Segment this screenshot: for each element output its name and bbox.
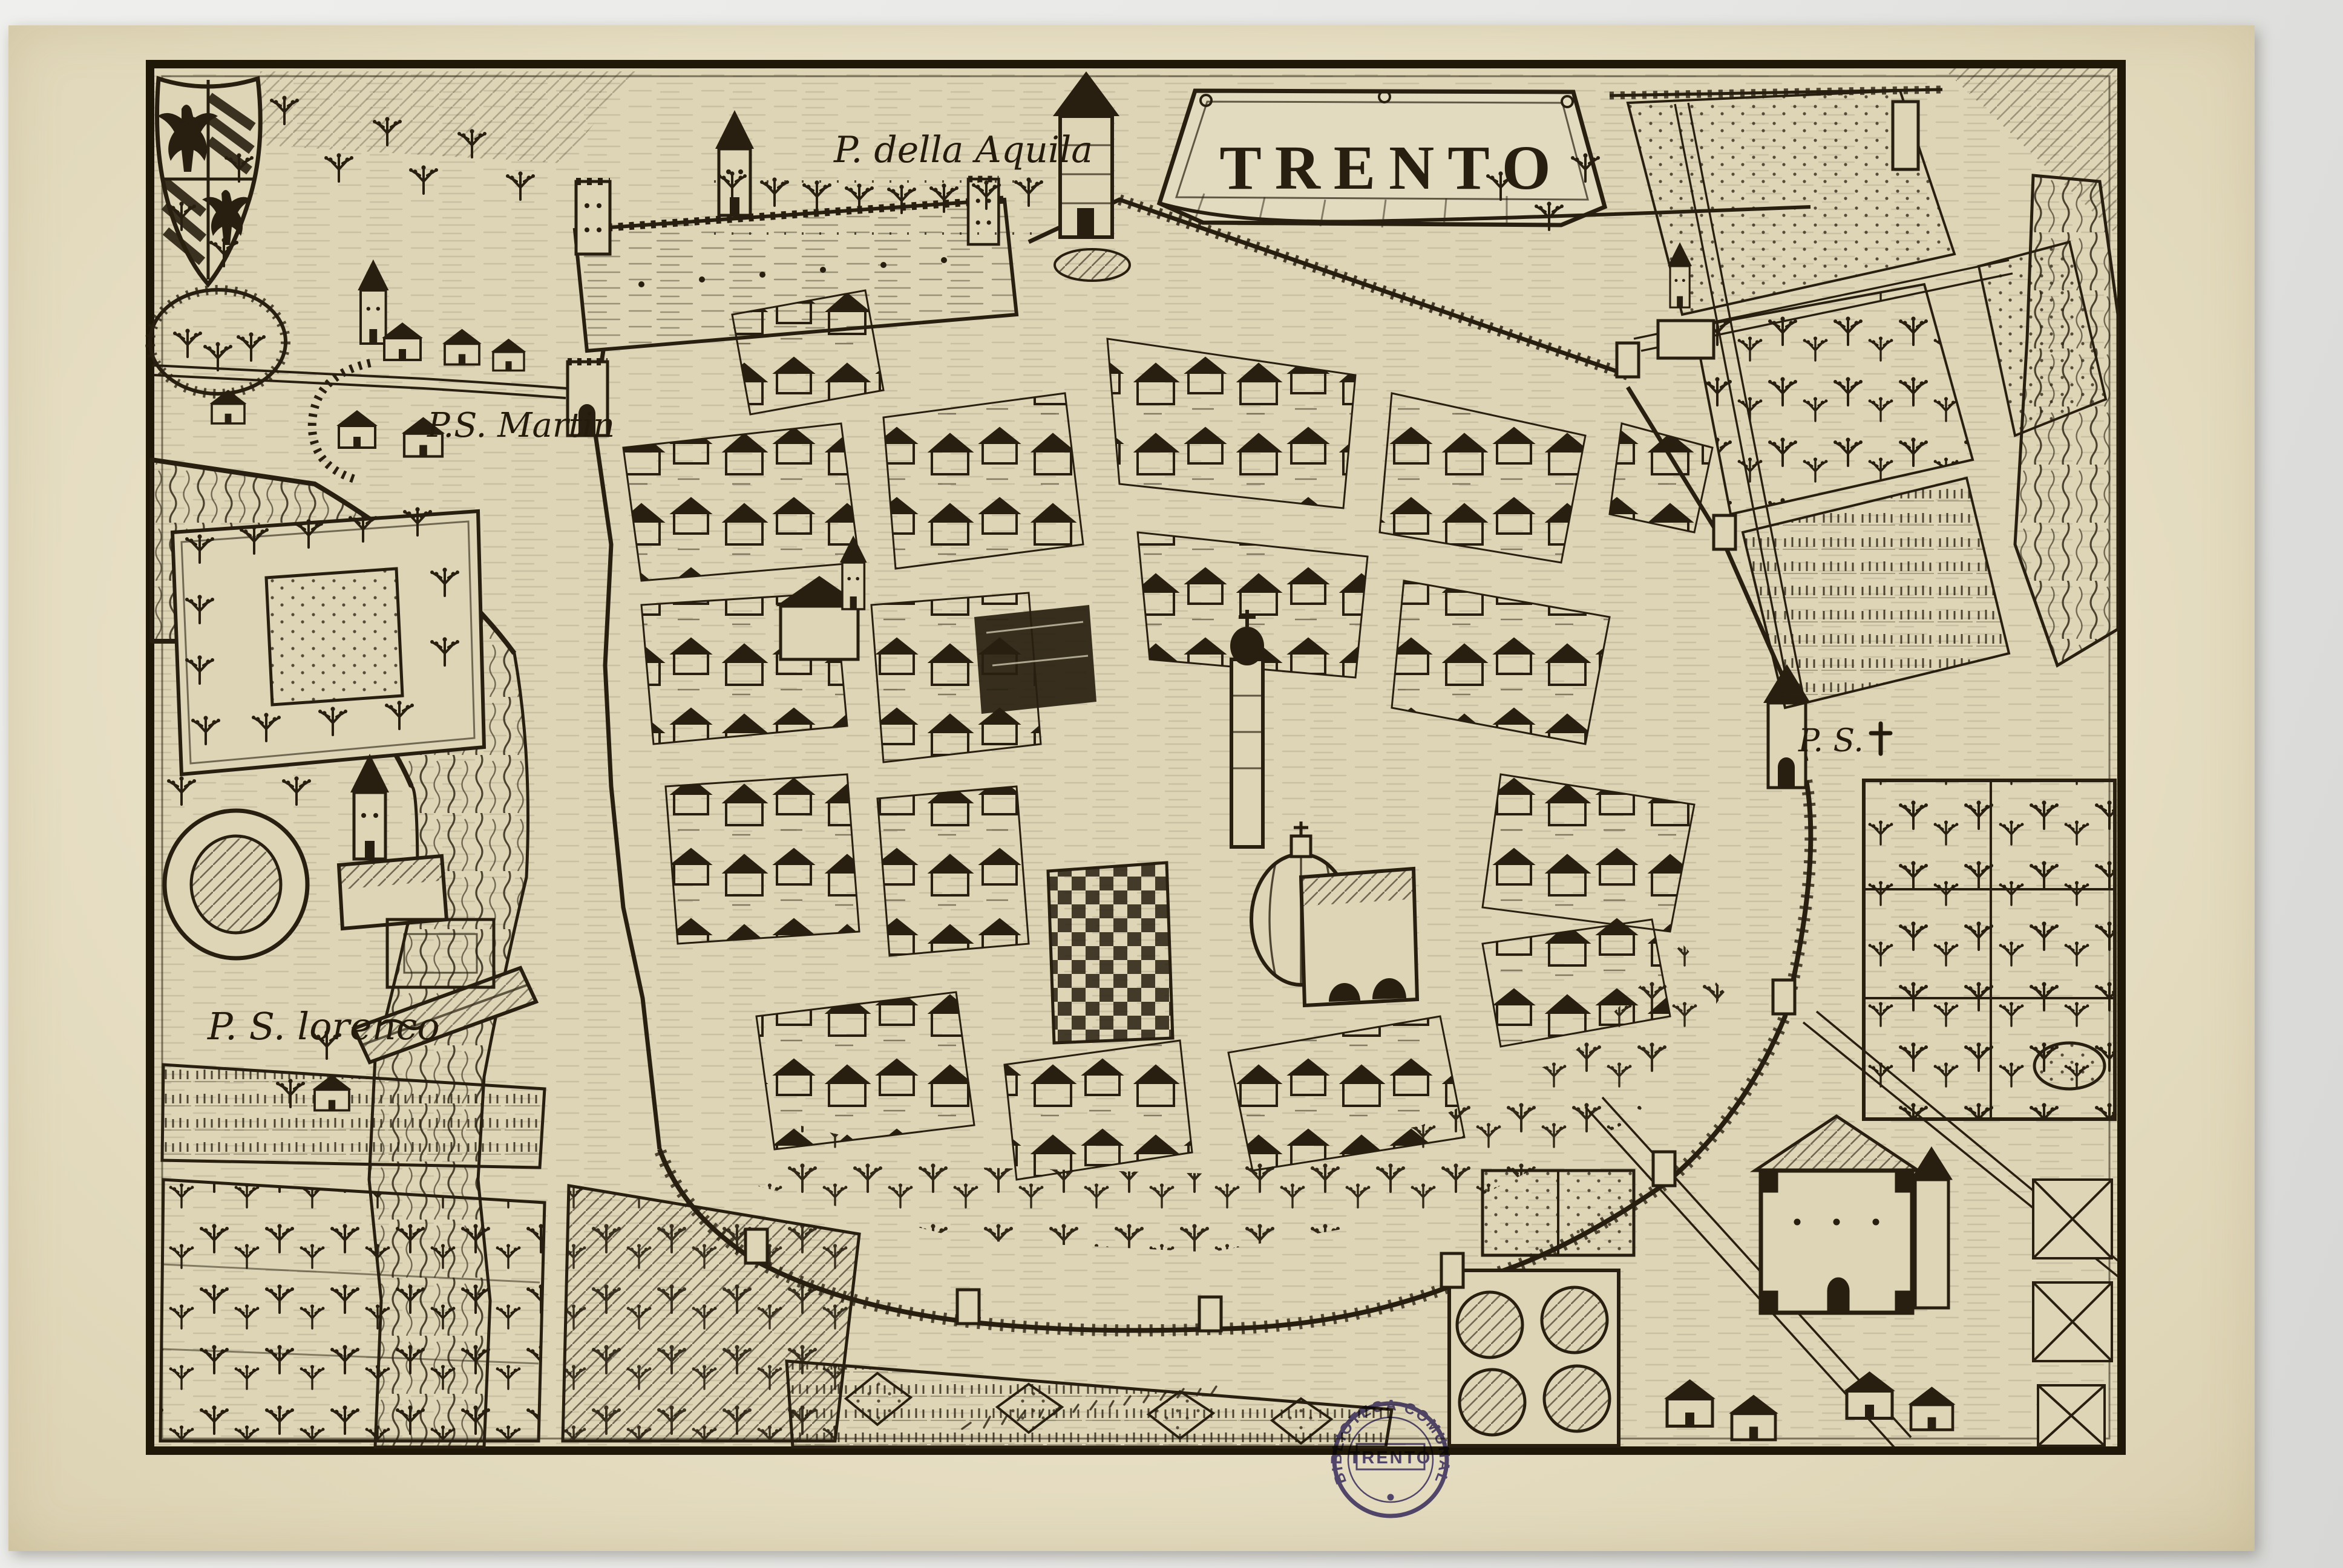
city-block	[877, 786, 1029, 956]
wall-tower	[1773, 980, 1795, 1014]
city-block	[883, 393, 1083, 569]
map-plate: TRENTO	[150, 64, 2122, 1451]
diamond-parterres	[2033, 1180, 2112, 1446]
stamp-center-text: TRENTO	[1349, 1448, 1432, 1468]
onion-dome	[1230, 627, 1264, 665]
scanned-map-page: TRENTO	[0, 0, 2343, 1568]
engraved-map: TRENTO	[0, 0, 2343, 1568]
label-porta-s-cross: P. S.	[1798, 723, 1864, 759]
wall-tower	[1441, 1253, 1463, 1287]
dark-palace-block	[974, 605, 1096, 714]
label-porta-s-martin: P.S. Martin	[427, 406, 615, 445]
wall-tower	[745, 1229, 767, 1263]
wall-tower	[1714, 515, 1735, 549]
label-porta-aquila: P. della Aquila	[833, 129, 1093, 171]
corner-tower	[1893, 102, 1918, 169]
castle-tower	[576, 181, 610, 254]
wall-tower	[1199, 1297, 1221, 1331]
map-title: TRENTO	[1219, 133, 1564, 203]
city-block	[623, 423, 859, 581]
piazza-duomo	[1048, 863, 1173, 1043]
stamp-dot	[1388, 1494, 1394, 1501]
stream-fersina	[2015, 175, 2118, 665]
four-circle-garden	[1449, 1270, 1619, 1446]
wall-tower	[1653, 1152, 1675, 1186]
wall-tower	[1617, 343, 1639, 377]
garden-mound	[1055, 249, 1130, 281]
wall-tower	[957, 1290, 979, 1324]
round-pond	[165, 811, 307, 958]
city-block	[666, 774, 859, 944]
city-block	[756, 992, 974, 1149]
